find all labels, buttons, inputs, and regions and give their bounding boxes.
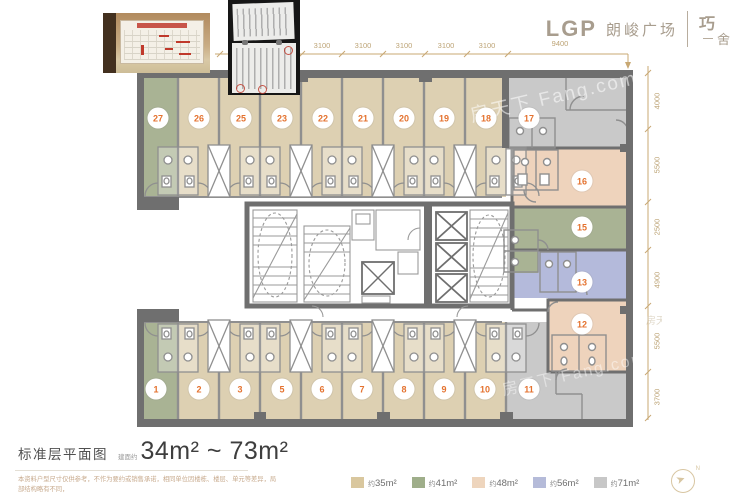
unit-number: 2 xyxy=(189,379,210,400)
area-range: 34m² ~ 73m² xyxy=(141,437,289,466)
logo-abbr: LGP xyxy=(546,16,597,42)
unit-number: 17 xyxy=(519,108,540,129)
title-block: 标准层平面图 建面约 34m² ~ 73m² xyxy=(18,437,288,466)
plan-title: 标准层平面图 xyxy=(18,443,108,463)
legend-swatch xyxy=(594,477,607,488)
legend-item: 约71m² xyxy=(594,473,640,491)
seal-char-top: 巧 xyxy=(699,10,715,34)
unit-number: 26 xyxy=(189,108,210,129)
unit-number: 8 xyxy=(394,379,415,400)
legend-swatch xyxy=(351,477,364,488)
dim-label-right: 3700 xyxy=(653,389,662,406)
legend-value: 56m² xyxy=(557,478,579,489)
legend-swatch xyxy=(412,477,425,488)
legend-prefix: 约 xyxy=(429,481,436,488)
legend-item: 约48m² xyxy=(472,473,518,491)
disclaimer: 本资料户型尺寸仅供参考，不作为要约或销售承诺，相同单位因楼栋、楼层、单元等差异，… xyxy=(18,475,278,493)
unit-number: 12 xyxy=(572,314,593,335)
unit-number: 25 xyxy=(231,108,252,129)
brand-logo: LGP 朗峻广场 巧 舍 xyxy=(546,10,731,48)
unit-number: 1 xyxy=(146,379,167,400)
dim-label-right: 4000 xyxy=(653,93,662,110)
unit-number: 20 xyxy=(394,108,415,129)
photo-page xyxy=(232,2,294,41)
floor-plan-image[interactable] xyxy=(0,0,745,493)
logo-seal: 巧 舍 xyxy=(697,10,731,48)
compass-arrow-icon: ➤ xyxy=(674,472,687,487)
disclaimer-line: 本资料户型尺寸仅供参考，不作为要约或销售承诺，相同单位因楼栋、楼层、单元等差异，… xyxy=(18,475,278,493)
logo-name: 朗峻广场 xyxy=(606,19,678,40)
legend-swatch xyxy=(472,477,485,488)
unit-number: 13 xyxy=(572,272,593,293)
unit-number: 23 xyxy=(272,108,293,129)
unit-number: 15 xyxy=(572,217,593,238)
legend-value: 71m² xyxy=(618,478,640,489)
legend-item: 约41m² xyxy=(412,473,458,491)
unit-number: 7 xyxy=(352,379,373,400)
dim-label-right: 5500 xyxy=(653,157,662,174)
unit-number: 3 xyxy=(230,379,251,400)
dim-label-right: 5500 xyxy=(653,333,662,350)
unit-number: 21 xyxy=(353,108,374,129)
legend-item: 约35m² xyxy=(351,473,397,491)
dim-label-top: 3100 xyxy=(396,41,413,50)
legend-prefix: 约 xyxy=(611,481,618,488)
photo-doorway xyxy=(103,13,116,73)
unit-number: 10 xyxy=(475,379,496,400)
dim-label-top: 3100 xyxy=(479,41,496,50)
seal-char-bottom: 舍 xyxy=(717,29,730,48)
unit-number: 18 xyxy=(476,108,497,129)
unit-number: 5 xyxy=(272,379,293,400)
floorplan-page: 房天下 Fang.com 房天下 Fang.com 房天下 Fang.com 3… xyxy=(0,0,745,493)
legend-prefix: 约 xyxy=(550,481,557,488)
dim-label-right: 2500 xyxy=(653,219,662,236)
elevator-bank xyxy=(436,212,467,302)
area-prefix: 建面约 xyxy=(118,451,138,461)
dim-label-right: 4900 xyxy=(653,272,662,289)
dim-label-top: 3100 xyxy=(314,41,331,50)
sales-board-photo-thumbnail[interactable] xyxy=(103,13,210,73)
photo-whiteboard xyxy=(120,20,204,64)
core-dividing-wall xyxy=(424,204,432,306)
compass-icon: ➤ N xyxy=(671,469,695,493)
unit-number: 6 xyxy=(312,379,333,400)
legend-value: 48m² xyxy=(496,478,518,489)
dim-label-top: 3100 xyxy=(438,41,455,50)
unit-number: 22 xyxy=(313,108,334,129)
divider-rule xyxy=(15,470,248,471)
unit-number: 27 xyxy=(148,108,169,129)
area-legend: 约35m² 约41m² 约48m² 约56m² 约71m² xyxy=(351,473,639,491)
legend-value: 41m² xyxy=(436,478,458,489)
legend-prefix: 约 xyxy=(368,481,375,488)
unit-number: 9 xyxy=(434,379,455,400)
legend-swatch xyxy=(533,477,546,488)
unit-number: 19 xyxy=(434,108,455,129)
dim-label-top: 3100 xyxy=(355,41,372,50)
documents-photo-thumbnail[interactable] xyxy=(228,0,300,95)
core-elevator xyxy=(362,262,394,294)
core xyxy=(247,204,512,317)
unit-number: 16 xyxy=(572,171,593,192)
compass-north-label: N xyxy=(696,466,700,472)
logo-divider xyxy=(687,11,688,47)
binder-clip xyxy=(242,40,248,45)
binder-clip xyxy=(276,40,282,45)
legend-value: 35m² xyxy=(375,478,397,489)
unit-number: 11 xyxy=(519,379,540,400)
legend-item: 约56m² xyxy=(533,473,579,491)
